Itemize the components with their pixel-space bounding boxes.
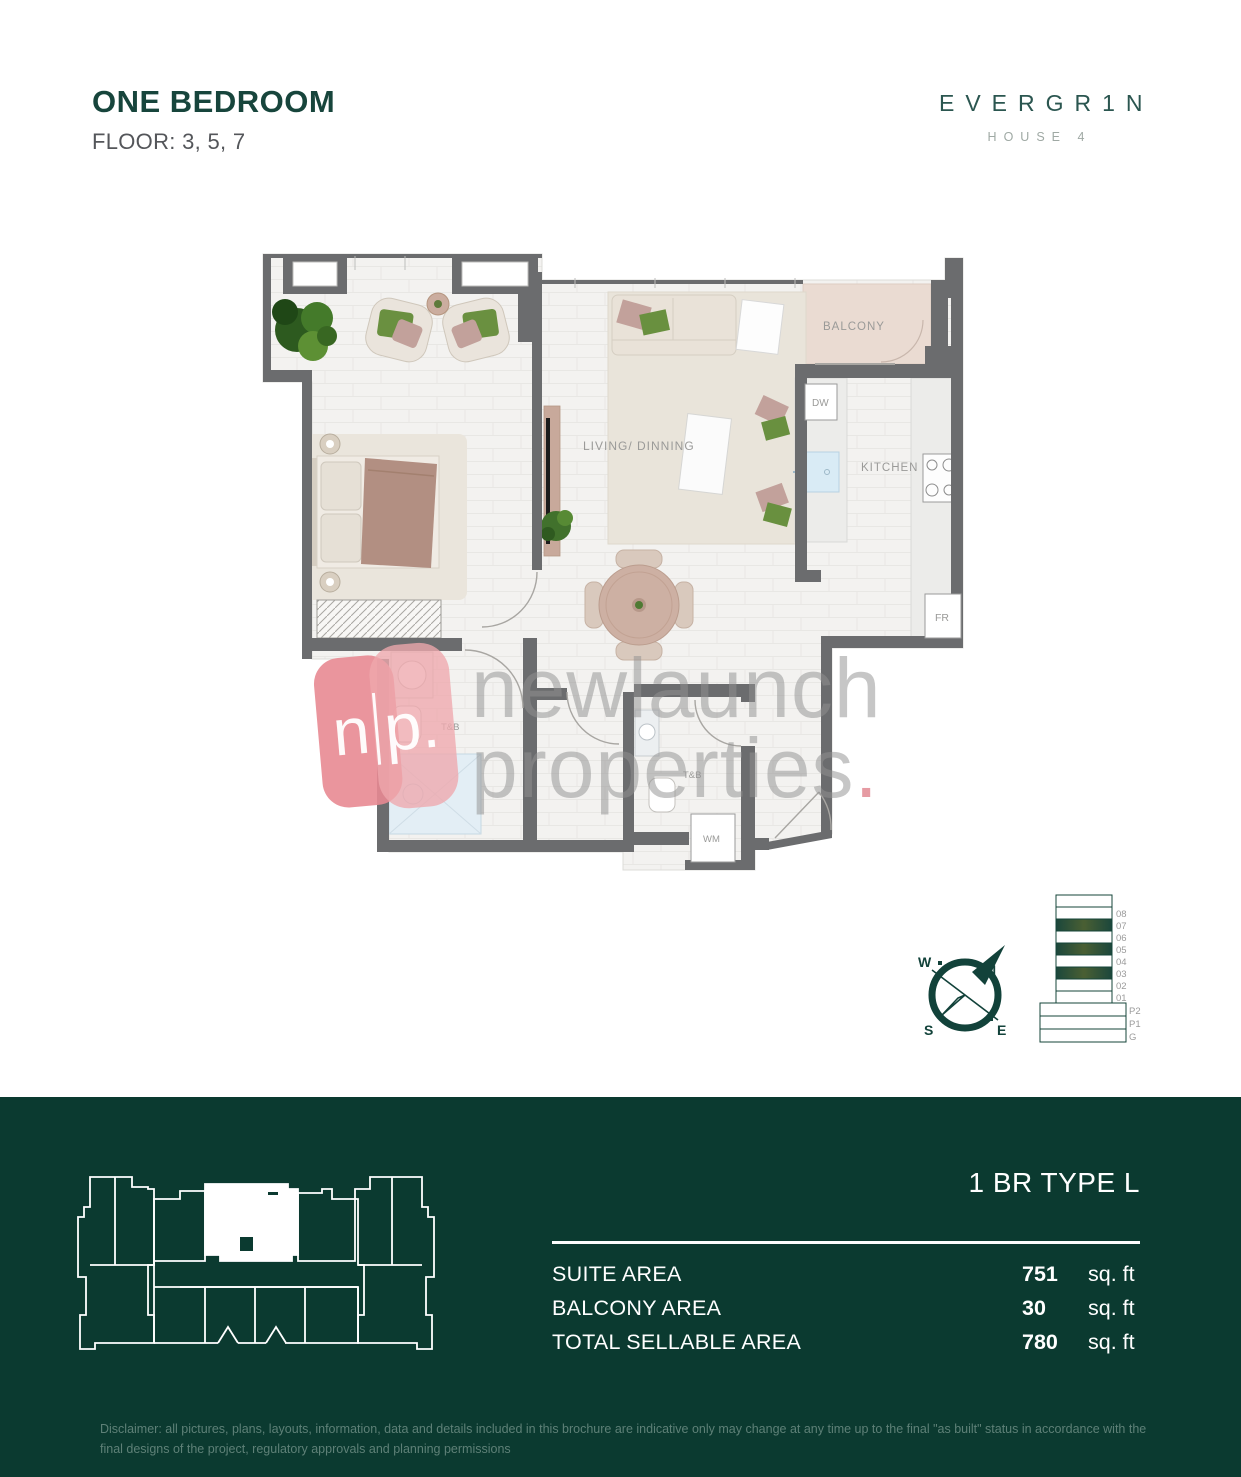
living-label: LIVING/ DINNING xyxy=(583,439,695,453)
balcony-label: BALCONY xyxy=(823,321,885,333)
area-unit: sq. ft xyxy=(1088,1296,1140,1321)
wardrobe xyxy=(317,600,441,638)
area-label: TOTAL SELLABLE AREA xyxy=(552,1330,1022,1355)
brand-name: EVERGR1N xyxy=(928,90,1144,117)
stack-floor-06: 06 xyxy=(1116,933,1127,944)
area-value: 751 xyxy=(1022,1262,1088,1287)
stack-floor-01: 01 xyxy=(1116,993,1127,1004)
watermark-period: . xyxy=(855,721,879,815)
area-table: SUITE AREA 751 sq. ft BALCONY AREA 30 sq… xyxy=(552,1257,1140,1359)
area-unit: sq. ft xyxy=(1088,1262,1140,1287)
stack-level-p2: P2 xyxy=(1129,1006,1141,1017)
nlp-p: p. xyxy=(381,685,442,766)
dw-label: DW xyxy=(812,398,829,409)
page-title: ONE BEDROOM xyxy=(92,84,335,120)
compass-west: W xyxy=(918,954,932,970)
fr-label: FR xyxy=(935,612,949,624)
divider-line xyxy=(552,1241,1140,1244)
brochure-page: ONE BEDROOM FLOOR: 3, 5, 7 EVERGR1N HOUS… xyxy=(0,0,1241,1477)
watermark-text: newlaunch properties. xyxy=(471,648,882,808)
coffee-table xyxy=(679,414,732,495)
key-plan-unit-core xyxy=(240,1237,253,1251)
area-label: BALCONY AREA xyxy=(552,1296,1022,1321)
unit-type-title: 1 BR TYPE L xyxy=(550,1167,1140,1199)
kitchen-sink xyxy=(803,452,839,492)
floor-availability-label: FLOOR: 3, 5, 7 xyxy=(92,129,335,155)
area-value: 30 xyxy=(1022,1296,1088,1321)
key-plan xyxy=(70,1165,442,1357)
compass-icon: W N S E xyxy=(912,925,1022,1040)
wm-label: WM xyxy=(703,834,720,845)
sofa xyxy=(612,295,736,355)
disclaimer-text: Disclaimer: all pictures, plans, layouts… xyxy=(100,1419,1165,1460)
throw-blanket xyxy=(736,300,784,355)
nightstand-top-detail xyxy=(326,440,334,448)
window-bay-left xyxy=(293,262,337,286)
compass-east: E xyxy=(997,1022,1006,1038)
stack-floor-03: 03 xyxy=(1116,969,1127,980)
stack-level-g: G xyxy=(1129,1032,1136,1043)
nlp-bar xyxy=(372,693,381,765)
table-row: BALCONY AREA 30 sq. ft xyxy=(552,1291,1140,1325)
brand-subtitle: HOUSE 4 xyxy=(928,130,1144,144)
brand-logo: EVERGR1N HOUSE 4 xyxy=(928,90,1144,144)
table-row: SUITE AREA 751 sq. ft xyxy=(552,1257,1140,1291)
key-plan-unit-notch xyxy=(268,1192,278,1195)
table-row: TOTAL SELLABLE AREA 780 sq. ft xyxy=(552,1325,1140,1359)
stack-floor-04: 04 xyxy=(1116,957,1127,968)
stack-floor-07: 07 xyxy=(1116,921,1127,932)
side-table-plant xyxy=(434,300,442,308)
stack-floor-05: 05 xyxy=(1116,945,1127,956)
compass-north: N xyxy=(986,962,996,978)
nightstand-bottom-detail xyxy=(326,578,334,586)
bed xyxy=(309,456,439,568)
stack-level-p1: P1 xyxy=(1129,1019,1141,1030)
kitchen-label: KITCHEN xyxy=(861,462,918,474)
area-unit: sq. ft xyxy=(1088,1330,1140,1355)
nlp-logo-text: n p. xyxy=(311,640,461,815)
watermark-line2: properties xyxy=(471,721,855,815)
footer: 1 BR TYPE L SUITE AREA 751 sq. ft BALCON… xyxy=(0,1097,1241,1477)
window-bay-right xyxy=(462,262,528,286)
stack-floor-02: 02 xyxy=(1116,981,1127,992)
area-value: 780 xyxy=(1022,1330,1088,1355)
watermark-nlp-logo: n p. xyxy=(311,640,461,815)
floor-stack-diagram: 08 07 06 05 04 03 02 01 P2 P1 G xyxy=(1035,888,1165,1058)
compass-south: S xyxy=(924,1022,933,1038)
nlp-n: n xyxy=(330,692,373,771)
area-label: SUITE AREA xyxy=(552,1262,1022,1287)
stack-floor-08: 08 xyxy=(1116,909,1127,920)
header: ONE BEDROOM FLOOR: 3, 5, 7 xyxy=(92,84,335,155)
